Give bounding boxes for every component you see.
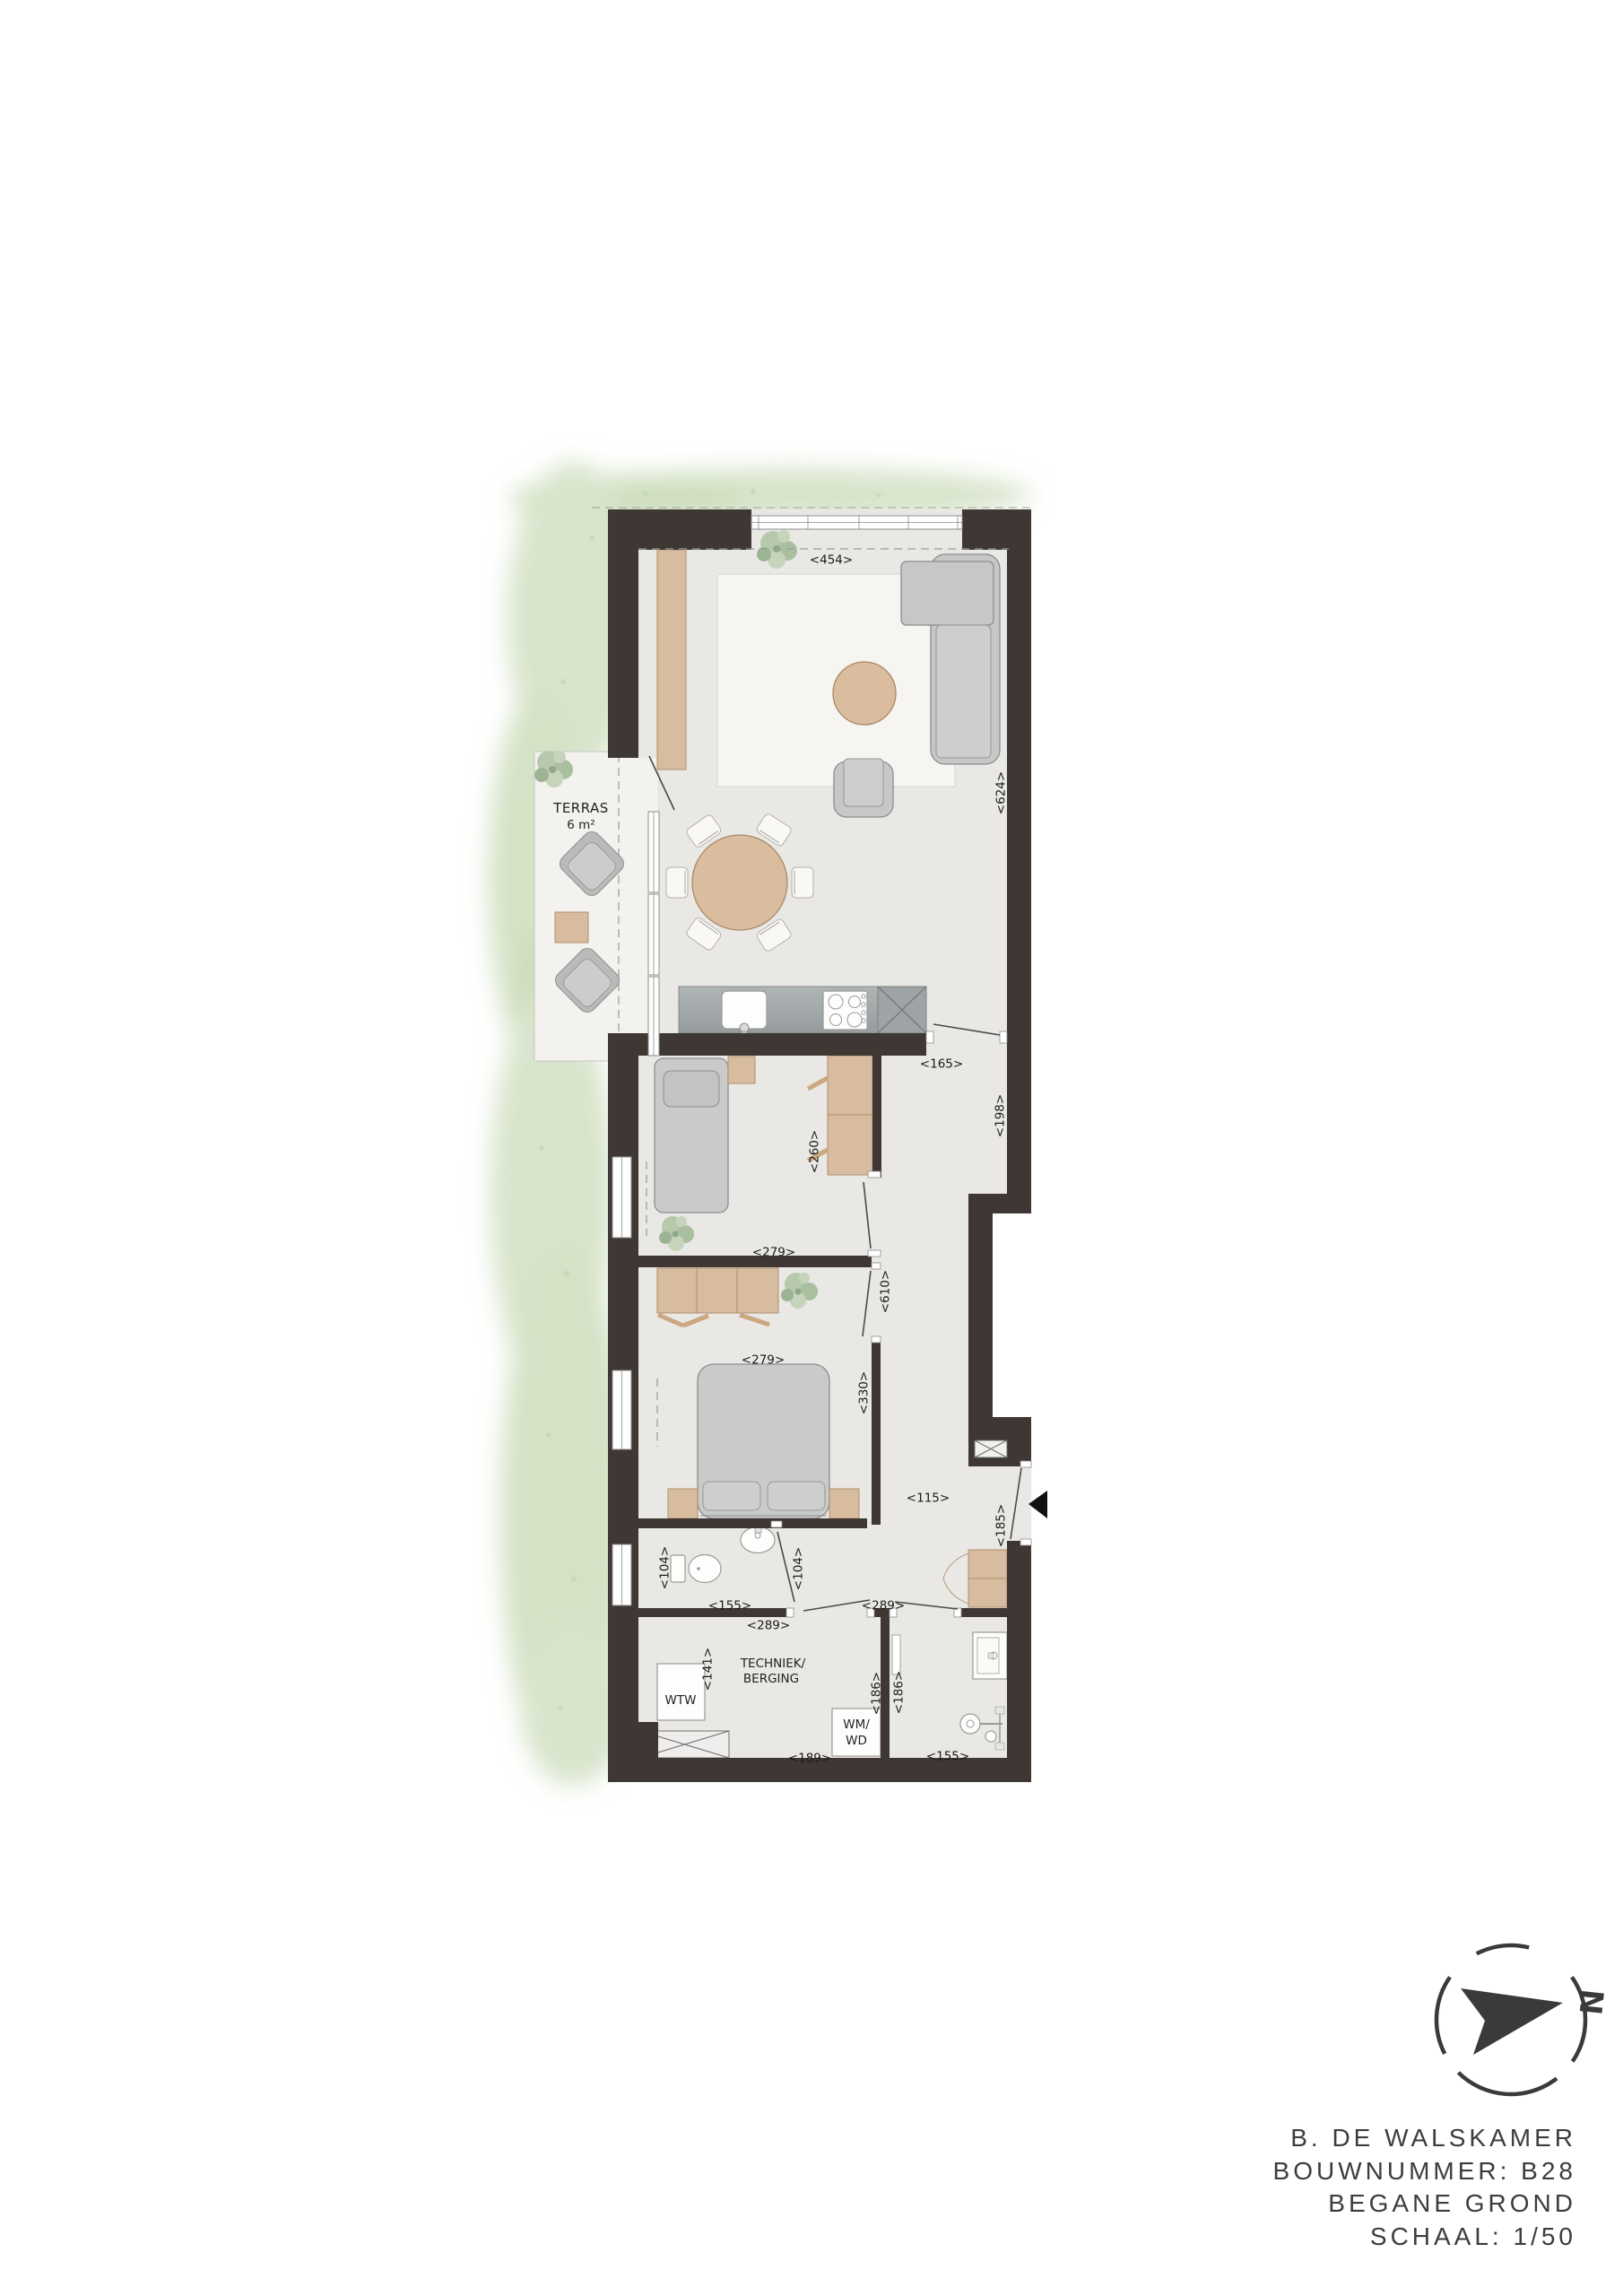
kitchen — [679, 987, 926, 1039]
floor-plan: TERRAS 6 m² — [0, 0, 1623, 2296]
dimension-label: <115> — [907, 1492, 950, 1506]
dimension-label: <289> — [862, 1599, 905, 1613]
dimension-label: <165> — [920, 1057, 963, 1072]
dimension-label: <155> — [926, 1750, 969, 1764]
dimension-label: <454> — [810, 553, 853, 568]
wtw-unit: WTW — [657, 1664, 705, 1720]
plan-title: B. DE WALSKAMER — [1273, 2122, 1576, 2155]
dining-table — [692, 835, 787, 930]
window — [751, 516, 962, 529]
dining-chair — [792, 867, 813, 898]
dimension-label: <330> — [857, 1371, 872, 1414]
dimension-label: <279> — [752, 1246, 795, 1260]
entrance-arrow-icon — [1028, 1491, 1047, 1518]
wm-wd-label: WD — [846, 1734, 867, 1748]
vent-shaft-icon — [975, 1440, 1007, 1457]
dimension-label: <104> — [658, 1546, 673, 1589]
terras-area-label: 6 m² — [567, 818, 595, 832]
north-arrow-icon — [1461, 1988, 1563, 2055]
dimension-label: <141> — [701, 1648, 716, 1691]
window — [612, 1370, 631, 1449]
dining-chair — [666, 867, 688, 898]
bed-double — [698, 1364, 829, 1518]
window — [612, 1544, 631, 1605]
wm-wd-label: WM/ — [843, 1718, 870, 1732]
plan-floor-name: BEGANE GROND — [1273, 2187, 1576, 2221]
terras: TERRAS 6 m² — [534, 751, 659, 1061]
dimension-label: <185> — [994, 1504, 1009, 1547]
wtw-label: WTW — [665, 1693, 697, 1708]
bed-single — [655, 1058, 728, 1213]
dimension-label: <279> — [742, 1353, 785, 1368]
techniek-label: TECHNIEK/ — [740, 1657, 806, 1671]
coffee-table — [833, 662, 896, 725]
armchair — [834, 759, 893, 817]
dimension-label: <260> — [808, 1130, 822, 1173]
dimension-label: <186> — [870, 1672, 884, 1715]
dimension-label: <189> — [788, 1752, 831, 1766]
nightstand — [728, 1057, 755, 1083]
compass-north-label: N — [1572, 1987, 1610, 2016]
side-table — [555, 912, 588, 943]
cabinet-strip — [657, 550, 686, 770]
plan-bouwnummer: BOUWNUMMER: B28 — [1273, 2155, 1576, 2188]
glass-door-wall — [648, 812, 659, 1056]
nightstand — [668, 1489, 698, 1518]
terras-label: TERRAS — [552, 800, 609, 816]
dimension-label: <155> — [708, 1599, 751, 1613]
title-block: B. DE WALSKAMER BOUWNUMMER: B28 BEGANE G… — [1273, 2122, 1576, 2253]
toilet — [671, 1555, 721, 1583]
nightstand — [829, 1489, 859, 1518]
dimension-label: <186> — [892, 1671, 907, 1714]
compass: N — [1407, 1916, 1614, 2123]
dimension-label: <104> — [792, 1547, 806, 1590]
dimension-label: <289> — [747, 1619, 790, 1633]
vanity-cabinet — [973, 1632, 1007, 1679]
dimension-label: <198> — [994, 1094, 1008, 1137]
tall-cabinet — [878, 987, 926, 1033]
techniek-label: BERGING — [743, 1672, 799, 1686]
cooktop — [823, 991, 867, 1030]
plan-scale: SCHAAL: 1/50 — [1273, 2221, 1576, 2254]
dimension-label: <624> — [994, 771, 1009, 814]
dimension-label: <610> — [879, 1270, 893, 1313]
window — [612, 1157, 631, 1238]
